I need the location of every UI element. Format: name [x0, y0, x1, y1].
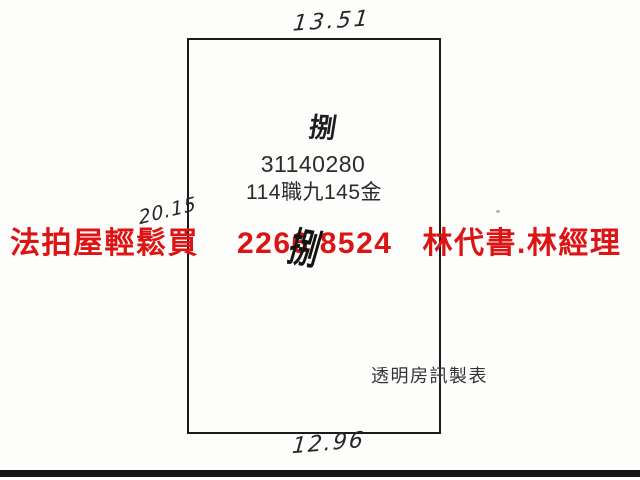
watermark-agency: 法拍屋輕鬆買	[10, 218, 199, 262]
watermark-phone-second: 8524	[320, 227, 393, 261]
bottom-scan-bar	[0, 470, 640, 477]
dimension-bottom: 12.96	[291, 428, 366, 460]
lot-reference: 114職九145金	[187, 176, 441, 206]
dimension-top: 13.51	[292, 6, 372, 37]
scanned-parcel-map-page: 13.51 20.15 12.96 捌 31140280 114職九145金 透…	[0, 0, 640, 480]
maker-credit: 透明房訊製表	[371, 362, 488, 388]
lot-number: 31140280	[187, 151, 439, 178]
lot-label: 捌	[300, 105, 346, 146]
watermark-contacts: 林代書.林經理	[423, 218, 622, 262]
scan-smudge	[496, 210, 500, 213]
